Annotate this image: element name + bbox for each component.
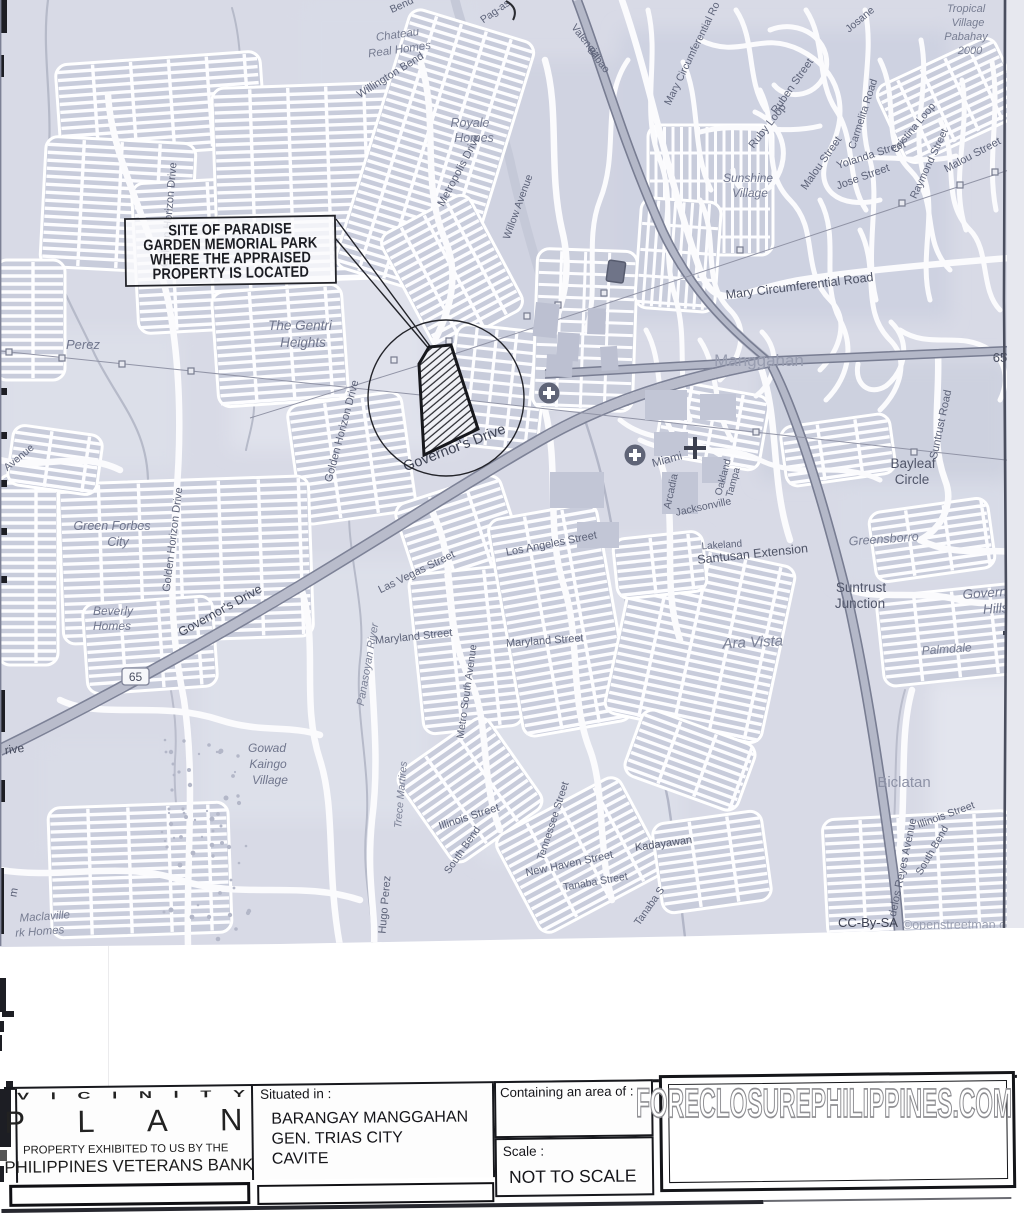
svg-text:Pabahay: Pabahay xyxy=(944,31,989,43)
svg-text:Manggahan: Manggahan xyxy=(714,351,804,370)
svg-text:rive: rive xyxy=(4,741,25,758)
svg-text:Royale: Royale xyxy=(451,116,490,130)
svg-text:Bayleaf: Bayleaf xyxy=(890,456,935,471)
svg-text:Ara Vista: Ara Vista xyxy=(721,632,783,652)
svg-text:Green Forbes: Green Forbes xyxy=(73,519,150,533)
svg-text:Kaingo: Kaingo xyxy=(249,757,287,771)
svg-text:Biclatan: Biclatan xyxy=(877,774,930,791)
svg-text:Homes: Homes xyxy=(93,619,131,633)
svg-text:Beverly: Beverly xyxy=(93,604,134,618)
svg-text:©openstreetmap.org: ©openstreetmap.org xyxy=(903,918,1017,932)
svg-text:2000: 2000 xyxy=(957,45,983,57)
svg-text:City: City xyxy=(107,535,129,549)
svg-text:PROPERTY IS LOCATED: PROPERTY IS LOCATED xyxy=(152,264,309,284)
svg-text:Village: Village xyxy=(252,773,288,787)
svg-text:Perez: Perez xyxy=(66,337,100,352)
svg-text:Tropical: Tropical xyxy=(947,3,986,15)
svg-text:Gowad: Gowad xyxy=(248,741,286,755)
svg-text:Circle: Circle xyxy=(895,472,930,487)
svg-text:Village: Village xyxy=(952,17,985,29)
svg-text:Heights: Heights xyxy=(280,335,326,350)
svg-text:Junction: Junction xyxy=(835,596,885,611)
svg-text:The Gentri: The Gentri xyxy=(268,318,333,333)
svg-text:Sunshine: Sunshine xyxy=(723,171,773,185)
svg-text:Suntrust: Suntrust xyxy=(836,580,887,595)
svg-text:CC-By-SA: CC-By-SA xyxy=(838,915,898,930)
svg-text:Village: Village xyxy=(732,186,768,200)
svg-text:65: 65 xyxy=(129,670,143,684)
